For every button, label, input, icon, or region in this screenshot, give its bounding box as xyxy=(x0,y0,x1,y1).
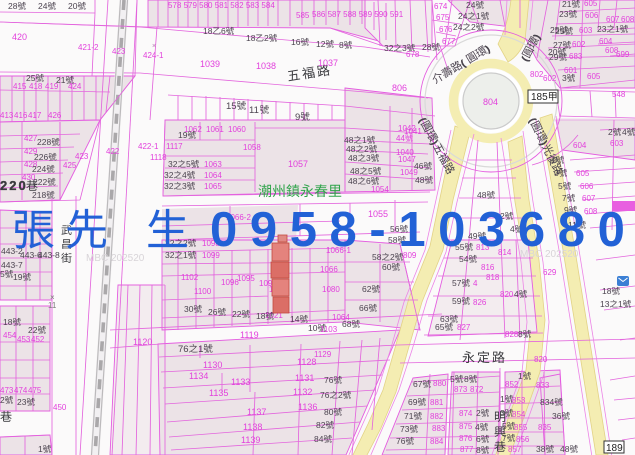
svg-text:18: 18 xyxy=(602,286,612,296)
svg-text:60: 60 xyxy=(382,262,392,272)
svg-text:818: 818 xyxy=(486,273,500,282)
svg-text:604: 604 xyxy=(573,141,587,150)
svg-text:1: 1 xyxy=(551,155,556,165)
svg-text:1037: 1037 xyxy=(318,58,338,68)
svg-text:28: 28 xyxy=(8,1,18,11)
svg-text:1119: 1119 xyxy=(240,330,259,340)
svg-text:602: 602 xyxy=(572,40,586,49)
svg-text:1118: 1118 xyxy=(150,153,167,162)
svg-text:473: 473 xyxy=(0,386,14,395)
svg-text:586 587 588 589 590 591: 586 587 588 589 590 591 xyxy=(312,10,404,19)
svg-text:857: 857 xyxy=(508,445,522,454)
svg-text:4: 4 xyxy=(475,422,480,432)
svg-text:30: 30 xyxy=(184,304,194,314)
svg-text:413: 413 xyxy=(0,111,14,120)
svg-text:218: 218 xyxy=(32,190,46,200)
svg-text:84: 84 xyxy=(314,434,324,444)
svg-text:48: 48 xyxy=(348,153,358,163)
svg-text:11: 11 xyxy=(48,301,57,310)
svg-text:5: 5 xyxy=(502,421,507,431)
svg-text:76: 76 xyxy=(320,390,330,400)
svg-text:1138: 1138 xyxy=(243,422,262,432)
svg-text:2: 2 xyxy=(338,390,343,400)
svg-text:1061: 1061 xyxy=(206,125,224,134)
svg-text:82: 82 xyxy=(316,420,326,430)
svg-text:415: 415 xyxy=(13,82,27,91)
svg-text:23: 23 xyxy=(17,397,27,407)
svg-text:603: 603 xyxy=(579,26,593,35)
svg-text:423: 423 xyxy=(112,47,126,56)
svg-text:699: 699 xyxy=(616,50,630,59)
svg-text:48: 48 xyxy=(350,166,360,176)
svg-text:883: 883 xyxy=(432,424,446,433)
svg-text:68: 68 xyxy=(342,319,352,329)
svg-text:675: 675 xyxy=(436,13,450,22)
svg-text:66: 66 xyxy=(359,303,369,313)
svg-text:18: 18 xyxy=(3,317,13,327)
svg-text:1136: 1136 xyxy=(298,402,317,412)
svg-text:1: 1 xyxy=(476,11,481,21)
svg-text:5: 5 xyxy=(368,166,373,176)
svg-text:548: 548 xyxy=(612,90,626,99)
svg-text:24: 24 xyxy=(458,11,468,21)
svg-text:69: 69 xyxy=(408,397,418,407)
svg-text:1133: 1133 xyxy=(231,377,250,387)
svg-text:1131: 1131 xyxy=(295,373,314,383)
svg-text:18: 18 xyxy=(246,33,256,43)
svg-text:67: 67 xyxy=(413,379,423,389)
svg-text:475: 475 xyxy=(28,386,42,395)
svg-text:1: 1 xyxy=(615,24,620,34)
svg-text:19: 19 xyxy=(13,272,23,282)
svg-text:32: 32 xyxy=(165,250,175,260)
svg-text:443-8: 443-8 xyxy=(38,250,60,260)
svg-text:629: 629 xyxy=(543,268,557,277)
svg-text:1060: 1060 xyxy=(228,125,246,134)
svg-text:856: 856 xyxy=(516,435,530,444)
svg-text:1117: 1117 xyxy=(166,142,183,151)
svg-text:15: 15 xyxy=(226,101,237,112)
svg-text:427: 427 xyxy=(24,134,38,143)
svg-text:604: 604 xyxy=(599,37,613,46)
svg-text:21: 21 xyxy=(562,0,572,9)
svg-text:20: 20 xyxy=(548,47,558,57)
svg-text:453: 453 xyxy=(17,335,31,344)
svg-text:820: 820 xyxy=(500,290,514,299)
svg-text:1038: 1038 xyxy=(256,61,276,71)
svg-text:605: 605 xyxy=(584,0,598,8)
svg-text:1102: 1102 xyxy=(181,273,199,282)
svg-text:8: 8 xyxy=(339,40,344,50)
svg-text:44: 44 xyxy=(396,134,405,143)
svg-text:605: 605 xyxy=(576,169,590,178)
svg-text:603: 603 xyxy=(610,139,624,148)
svg-text:421-2: 421-2 xyxy=(78,43,99,52)
svg-text:881: 881 xyxy=(430,398,444,407)
svg-text:833: 833 xyxy=(536,381,550,390)
svg-text:1129: 1129 xyxy=(314,350,332,359)
svg-text:875: 875 xyxy=(459,422,473,431)
svg-text:1054: 1054 xyxy=(371,185,389,194)
svg-text:14: 14 xyxy=(290,314,300,324)
svg-text:454: 454 xyxy=(3,331,17,340)
svg-text:420: 420 xyxy=(12,32,27,42)
svg-text:12: 12 xyxy=(316,39,326,49)
svg-text:578 579 580 581 582 583 584: 578 579 580 581 582 583 584 xyxy=(168,1,275,10)
svg-text:10: 10 xyxy=(308,323,318,333)
svg-text:678: 678 xyxy=(406,50,420,59)
svg-text:426: 426 xyxy=(48,111,62,120)
svg-text:7: 7 xyxy=(502,433,507,443)
svg-text:425: 425 xyxy=(63,161,77,170)
svg-text:1130: 1130 xyxy=(203,360,222,370)
svg-text:2: 2 xyxy=(471,22,476,32)
svg-text:852: 852 xyxy=(505,380,519,389)
svg-text:3: 3 xyxy=(182,181,187,191)
svg-text:880: 880 xyxy=(433,379,447,388)
svg-text:16: 16 xyxy=(291,37,301,47)
svg-text:882: 882 xyxy=(430,412,444,421)
svg-text:2: 2 xyxy=(0,395,5,405)
svg-text:816: 816 xyxy=(481,263,495,272)
svg-text:48: 48 xyxy=(415,175,425,185)
svg-text:3: 3 xyxy=(500,408,505,418)
svg-text:1100: 1100 xyxy=(194,287,212,296)
svg-text:424: 424 xyxy=(68,82,82,91)
svg-text:424-1: 424-1 xyxy=(143,51,164,60)
svg-text:4: 4 xyxy=(622,127,627,137)
svg-text:71: 71 xyxy=(404,411,414,421)
svg-text:×: × xyxy=(152,43,156,50)
svg-text:7: 7 xyxy=(562,193,567,203)
svg-text:1: 1 xyxy=(618,299,623,309)
svg-text:23: 23 xyxy=(559,9,569,19)
svg-text:2: 2 xyxy=(608,127,613,137)
svg-text:1064: 1064 xyxy=(204,171,222,180)
svg-text:76: 76 xyxy=(396,436,406,446)
svg-text:585: 585 xyxy=(296,11,310,20)
svg-text:820: 820 xyxy=(534,355,548,364)
svg-text:418: 418 xyxy=(29,82,43,91)
svg-text:22: 22 xyxy=(232,309,242,319)
svg-text:1139: 1139 xyxy=(241,435,260,445)
svg-text:1: 1 xyxy=(183,250,188,260)
svg-text:806: 806 xyxy=(392,83,407,93)
svg-text:828: 828 xyxy=(505,330,519,339)
svg-text:602: 602 xyxy=(543,74,557,83)
svg-text:416: 416 xyxy=(14,111,28,120)
svg-text:5: 5 xyxy=(558,181,563,191)
svg-text:835: 835 xyxy=(538,423,552,432)
svg-text:608: 608 xyxy=(621,15,635,24)
svg-text:32: 32 xyxy=(164,181,174,191)
svg-text:1: 1 xyxy=(500,394,505,404)
svg-text:80: 80 xyxy=(324,407,334,417)
svg-text:1066: 1066 xyxy=(320,265,338,274)
svg-text:26: 26 xyxy=(208,307,218,317)
svg-text:18: 18 xyxy=(203,26,213,36)
svg-text:419: 419 xyxy=(45,82,59,91)
svg-text:423: 423 xyxy=(75,152,89,161)
svg-text:185: 185 xyxy=(531,92,548,103)
svg-text:65: 65 xyxy=(435,322,445,332)
svg-text:25: 25 xyxy=(550,25,560,35)
svg-text:474: 474 xyxy=(14,386,28,395)
svg-text:9: 9 xyxy=(295,112,300,123)
svg-text:802: 802 xyxy=(530,70,544,79)
svg-text:6: 6 xyxy=(476,434,481,444)
svg-text:22: 22 xyxy=(28,325,38,335)
svg-text:32: 32 xyxy=(164,170,174,180)
svg-text:1065: 1065 xyxy=(204,182,222,191)
svg-text:8: 8 xyxy=(518,329,523,339)
svg-text:804: 804 xyxy=(483,97,498,107)
svg-text:32: 32 xyxy=(168,159,178,169)
svg-text:38: 38 xyxy=(536,444,546,454)
svg-text:57: 57 xyxy=(452,278,462,288)
svg-text:222: 222 xyxy=(33,177,47,187)
svg-text:3: 3 xyxy=(366,153,371,163)
svg-text:6: 6 xyxy=(221,26,226,36)
svg-text:855: 855 xyxy=(514,423,528,432)
svg-text:873: 873 xyxy=(454,385,468,394)
svg-text:827: 827 xyxy=(457,323,471,332)
svg-text:76: 76 xyxy=(324,375,334,385)
svg-text:MBC 202520: MBC 202520 xyxy=(86,253,145,264)
svg-text:59: 59 xyxy=(452,296,462,306)
svg-text:62: 62 xyxy=(362,284,372,294)
svg-text:1135: 1135 xyxy=(209,388,228,398)
svg-text:1095: 1095 xyxy=(237,274,255,283)
svg-text:5: 5 xyxy=(186,159,191,169)
svg-text:4: 4 xyxy=(473,279,478,288)
svg-text:1120: 1120 xyxy=(133,337,152,347)
svg-text:1: 1 xyxy=(198,344,203,355)
svg-text:1132: 1132 xyxy=(293,387,312,397)
svg-text:3: 3 xyxy=(554,168,559,178)
svg-text:605: 605 xyxy=(587,72,601,81)
svg-text:4: 4 xyxy=(182,170,187,180)
svg-text:853: 853 xyxy=(512,396,526,405)
svg-text:606: 606 xyxy=(580,182,594,191)
svg-text:24: 24 xyxy=(453,22,463,32)
svg-text:1058: 1058 xyxy=(243,143,261,152)
svg-text:677: 677 xyxy=(442,37,456,46)
svg-text:24: 24 xyxy=(38,1,48,11)
svg-text:834: 834 xyxy=(540,397,554,407)
svg-text:422-1: 422-1 xyxy=(138,142,159,151)
svg-text:1080: 1080 xyxy=(322,285,340,294)
svg-text:417: 417 xyxy=(28,111,42,120)
svg-text:1103: 1103 xyxy=(320,325,338,334)
svg-text:607: 607 xyxy=(606,15,620,24)
svg-text:23: 23 xyxy=(597,24,607,34)
svg-text:874: 874 xyxy=(459,409,473,418)
svg-text:606: 606 xyxy=(585,11,599,20)
svg-text:19: 19 xyxy=(178,130,188,140)
svg-text:32: 32 xyxy=(384,43,394,53)
svg-text:1: 1 xyxy=(38,444,43,454)
svg-text:422: 422 xyxy=(106,147,120,156)
svg-text:18: 18 xyxy=(256,311,266,321)
svg-text:73: 73 xyxy=(400,424,410,434)
svg-text:228: 228 xyxy=(37,137,51,147)
svg-text:20: 20 xyxy=(68,1,78,11)
svg-text:189: 189 xyxy=(606,443,623,454)
svg-text:1057: 1057 xyxy=(288,159,308,169)
svg-text:8: 8 xyxy=(476,445,481,455)
svg-text:854: 854 xyxy=(512,410,526,419)
svg-text:2: 2 xyxy=(476,408,481,418)
svg-text:607: 607 xyxy=(582,194,596,203)
svg-text:11: 11 xyxy=(249,105,259,116)
svg-text:48: 48 xyxy=(560,444,570,454)
svg-text:5: 5 xyxy=(450,374,455,384)
svg-text:884: 884 xyxy=(430,437,444,446)
svg-text:452: 452 xyxy=(31,335,45,344)
svg-text:76: 76 xyxy=(178,344,189,355)
svg-text:13: 13 xyxy=(600,299,610,309)
svg-text:674: 674 xyxy=(434,2,448,11)
svg-text:1137: 1137 xyxy=(247,407,266,417)
svg-text:1: 1 xyxy=(518,371,523,381)
svg-text:0958-103680: 0958-103680 xyxy=(210,203,635,257)
svg-text:877: 877 xyxy=(460,445,474,454)
svg-text:826: 826 xyxy=(473,298,487,307)
svg-text:28: 28 xyxy=(422,42,432,52)
svg-text:1134: 1134 xyxy=(189,371,208,381)
svg-text:4: 4 xyxy=(514,289,519,299)
svg-text:3: 3 xyxy=(562,73,567,83)
svg-text:683: 683 xyxy=(569,52,583,61)
svg-text:8: 8 xyxy=(464,374,469,384)
svg-text:2: 2 xyxy=(264,33,269,43)
svg-text:676: 676 xyxy=(439,25,453,34)
svg-text:24: 24 xyxy=(466,0,476,10)
svg-text:48: 48 xyxy=(348,176,358,186)
svg-text:872: 872 xyxy=(470,385,484,394)
svg-text:1039: 1039 xyxy=(200,59,220,69)
svg-text:450: 450 xyxy=(53,403,67,412)
svg-text:1063: 1063 xyxy=(204,160,222,169)
svg-text:876: 876 xyxy=(459,434,473,443)
svg-text:48: 48 xyxy=(477,190,487,200)
svg-text:36: 36 xyxy=(552,411,562,421)
svg-text:5: 5 xyxy=(0,269,5,279)
